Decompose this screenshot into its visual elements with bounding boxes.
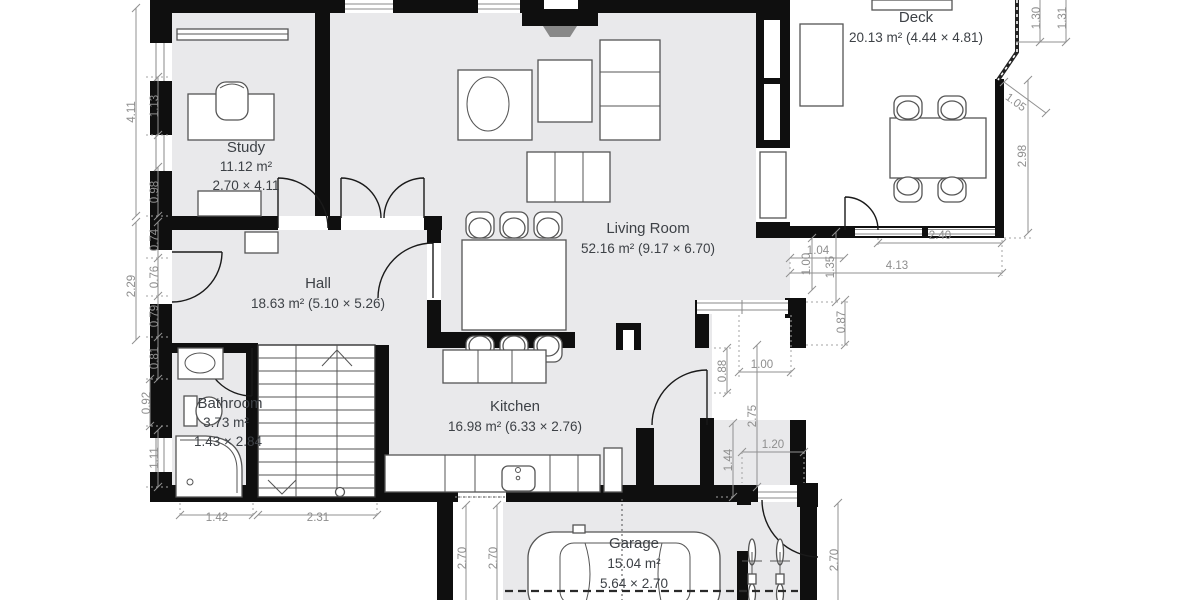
dim-garage-left-2: 2.70 [488, 547, 500, 569]
dim-notch-1: 0.88 [717, 360, 729, 382]
dim-notch-2: 2.75 [747, 405, 759, 427]
window-left-2 [150, 135, 172, 171]
dim-left-1: 1.13 [149, 95, 161, 117]
wall-garage-right [800, 483, 817, 600]
dim-deck-right: 2.98 [1017, 145, 1029, 167]
room-deck[interactable] [790, 0, 1000, 226]
stairs-post [336, 488, 345, 497]
room-hit-areas [172, 0, 1000, 600]
tv-label-box [544, 0, 578, 9]
room-kitchen[interactable] [389, 348, 700, 485]
dim-garage-right: 2.70 [829, 549, 841, 571]
dim-left-8: 1.11 [149, 447, 161, 469]
dim-top-right-1: 1.30 [1031, 7, 1043, 29]
dim-notch-3: 1.44 [723, 448, 735, 471]
window-band-post [922, 226, 928, 238]
dim-garage-left-1: 2.70 [457, 547, 469, 569]
room-garage[interactable] [503, 502, 800, 600]
window-left-1 [150, 43, 172, 81]
dim-left-outer-2: 2.29 [126, 275, 138, 297]
dim-win-1: 1.00 [751, 359, 773, 371]
dim-left-3: 0.74 [149, 228, 161, 251]
window-right-1 [764, 20, 780, 78]
study-door-opening [278, 216, 328, 230]
dim-left-7: 0.92 [141, 392, 153, 414]
wall-vest-a [790, 318, 806, 348]
dim-notch-4: 1.20 [762, 439, 784, 451]
wall-kitchen-right [700, 418, 714, 488]
dim-bottom-2: 2.31 [307, 512, 329, 524]
dim-left-6: 0.81 [149, 347, 161, 369]
dim-step-2: 1.00 [801, 253, 813, 275]
window-top-1 [345, 0, 393, 13]
dim-step-4: 0.87 [836, 311, 848, 333]
dim-left-outer-1: 4.11 [126, 101, 138, 123]
room-living[interactable] [330, 13, 756, 303]
dim-bottom-1: 1.42 [206, 512, 228, 524]
wall-band-corner [785, 298, 806, 318]
dim-deck-w2: 4.13 [886, 260, 908, 272]
dim-deck-diag: 1.05 [1003, 91, 1028, 114]
floor-plan-svg: 4.11 2.29 1.13 0.98 0.74 0.76 0.79 0.81 … [0, 0, 1200, 600]
room-bathroom[interactable] [172, 353, 246, 485]
wall-garage-leftcol [437, 490, 453, 600]
dim-left-2: 0.98 [149, 181, 161, 203]
wall-top [150, 0, 790, 13]
wall-stub-slot [623, 330, 634, 350]
dim-left-5: 0.79 [149, 305, 161, 327]
floor-plan-canvas: 4.11 2.29 1.13 0.98 0.74 0.76 0.79 0.81 … [0, 0, 1200, 600]
window-top-2 [478, 0, 520, 13]
dim-step-3: 1.35 [825, 256, 837, 278]
wall-study-living [315, 0, 330, 230]
room-study[interactable] [172, 13, 315, 216]
dim-top-right-2: 1.31 [1057, 7, 1069, 29]
stairs[interactable] [258, 345, 375, 497]
window-right-2 [764, 84, 780, 140]
vest-garage-opening [758, 485, 797, 502]
dim-deck-w1: 2.40 [929, 230, 951, 242]
dim-left-4: 0.76 [149, 266, 161, 288]
sliding-door-panel[interactable] [760, 152, 786, 218]
deck-railing [998, 0, 1017, 80]
